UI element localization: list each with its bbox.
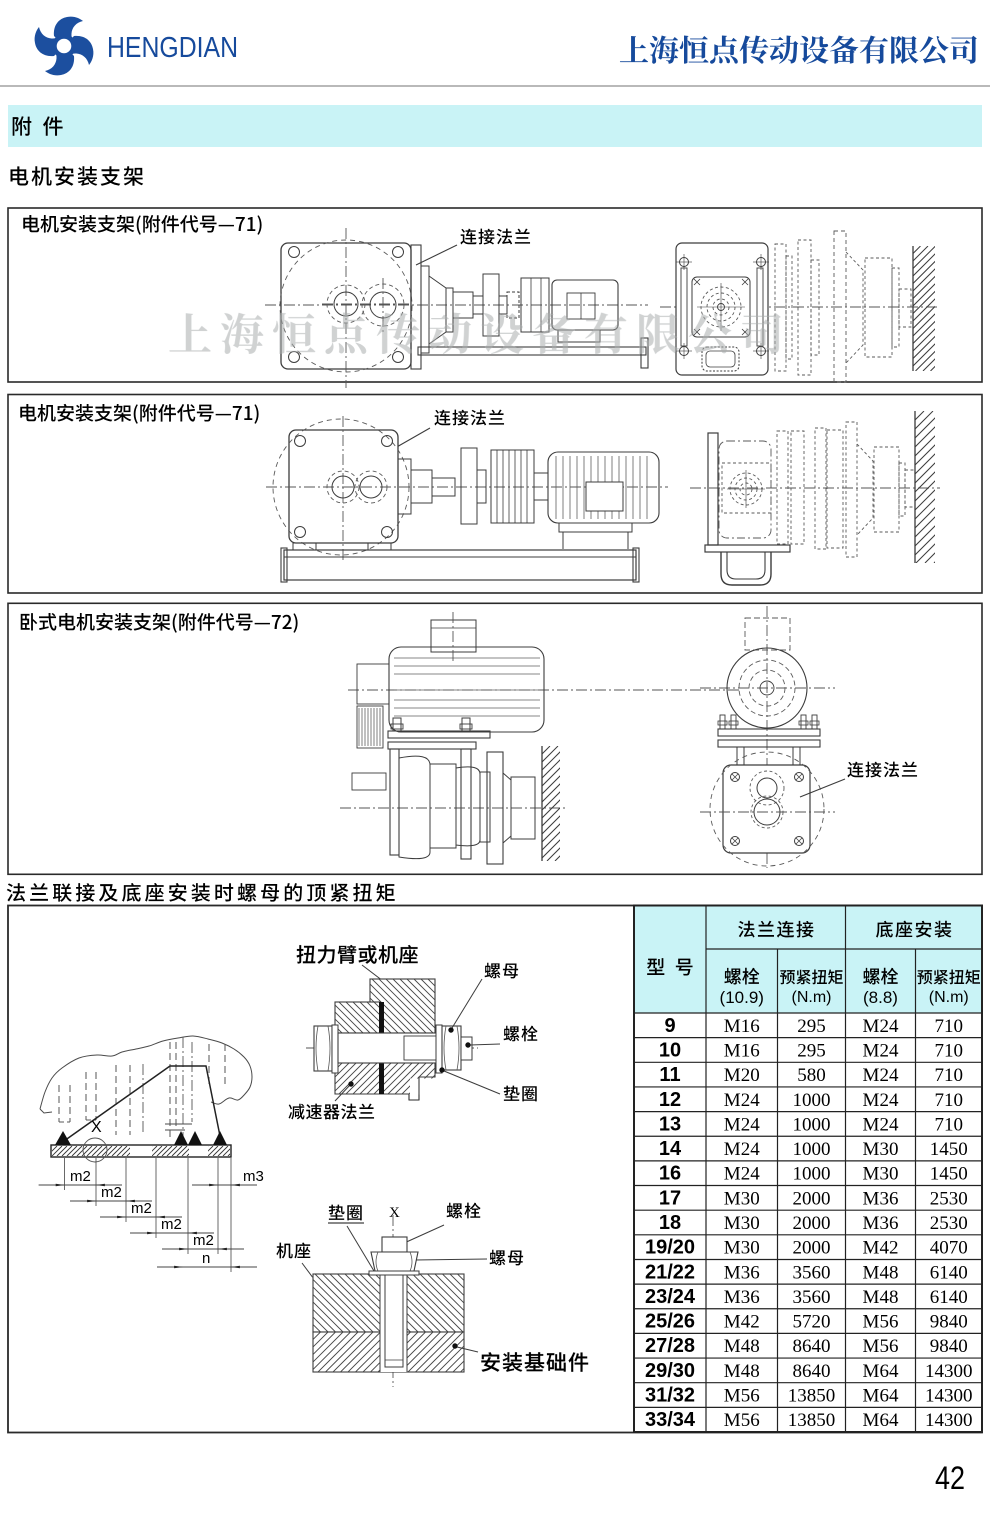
svg-text:m2: m2	[70, 1168, 91, 1185]
svg-text:X: X	[91, 1119, 102, 1136]
svg-text:710: 710	[935, 1016, 964, 1037]
svg-text:M30: M30	[724, 1213, 760, 1234]
svg-text:M24: M24	[863, 1065, 899, 1086]
svg-text:M24: M24	[863, 1090, 899, 1111]
svg-text:M30: M30	[724, 1188, 760, 1209]
svg-text:27/28: 27/28	[645, 1335, 695, 1357]
svg-text:M30: M30	[863, 1139, 899, 1160]
svg-text:13: 13	[659, 1113, 681, 1135]
svg-text:M64: M64	[863, 1386, 899, 1407]
svg-text:14300: 14300	[925, 1386, 973, 1407]
svg-text:M20: M20	[724, 1065, 760, 1086]
svg-text:3560: 3560	[793, 1287, 831, 1308]
svg-text:M36: M36	[724, 1262, 760, 1283]
svg-text:M24: M24	[724, 1139, 760, 1160]
svg-text:M24: M24	[863, 1114, 899, 1135]
svg-text:29/30: 29/30	[645, 1360, 695, 1382]
svg-text:3560: 3560	[793, 1262, 831, 1283]
svg-text:14: 14	[659, 1138, 682, 1160]
svg-text:M24: M24	[724, 1114, 760, 1135]
svg-text:(N.m): (N.m)	[929, 989, 969, 1006]
svg-text:M56: M56	[724, 1386, 760, 1407]
svg-text:M24: M24	[724, 1090, 760, 1111]
svg-text:710: 710	[935, 1114, 964, 1135]
svg-text:M16: M16	[724, 1016, 760, 1037]
svg-text:9: 9	[664, 1015, 675, 1037]
svg-text:14300: 14300	[925, 1410, 973, 1431]
svg-text:M48: M48	[863, 1287, 899, 1308]
svg-text:25/26: 25/26	[645, 1311, 695, 1333]
svg-text:23/24: 23/24	[645, 1286, 696, 1308]
svg-text:2000: 2000	[793, 1188, 831, 1209]
svg-text:1450: 1450	[930, 1164, 968, 1185]
svg-text:M36: M36	[863, 1213, 899, 1234]
svg-text:M24: M24	[863, 1040, 899, 1061]
svg-text:1000: 1000	[793, 1090, 831, 1111]
svg-text:2530: 2530	[930, 1213, 968, 1234]
svg-text:710: 710	[935, 1065, 964, 1086]
svg-text:M36: M36	[724, 1287, 760, 1308]
svg-text:M48: M48	[724, 1336, 760, 1357]
svg-text:m2: m2	[131, 1200, 152, 1217]
svg-text:1450: 1450	[930, 1139, 968, 1160]
svg-text:M56: M56	[724, 1410, 760, 1431]
svg-text:n: n	[202, 1250, 210, 1267]
svg-text:14300: 14300	[925, 1361, 973, 1382]
svg-text:11: 11	[659, 1064, 680, 1086]
svg-text:(N.m): (N.m)	[792, 989, 832, 1006]
svg-text:M36: M36	[863, 1188, 899, 1209]
svg-text:6140: 6140	[930, 1287, 968, 1308]
svg-text:m2: m2	[161, 1216, 182, 1233]
svg-text:31/32: 31/32	[645, 1385, 695, 1407]
svg-text:17: 17	[659, 1187, 681, 1209]
svg-text:12: 12	[659, 1089, 681, 1111]
svg-text:8640: 8640	[793, 1361, 831, 1382]
svg-text:710: 710	[935, 1040, 964, 1061]
svg-text:16: 16	[659, 1163, 681, 1185]
svg-text:M42: M42	[863, 1238, 899, 1259]
svg-text:710: 710	[935, 1090, 964, 1111]
svg-text:2000: 2000	[793, 1213, 831, 1234]
svg-text:m3: m3	[243, 1168, 264, 1185]
svg-text:m2: m2	[101, 1184, 122, 1201]
svg-text:M48: M48	[724, 1361, 760, 1382]
svg-text:M30: M30	[863, 1164, 899, 1185]
svg-text:2000: 2000	[793, 1238, 831, 1259]
svg-text:18: 18	[659, 1212, 681, 1234]
svg-text:6140: 6140	[930, 1262, 968, 1283]
svg-text:M56: M56	[863, 1336, 899, 1357]
svg-text:M64: M64	[863, 1410, 899, 1431]
svg-text:21/22: 21/22	[645, 1261, 695, 1283]
svg-text:8640: 8640	[793, 1336, 831, 1357]
svg-text:13850: 13850	[788, 1410, 836, 1431]
svg-text:M24: M24	[724, 1164, 760, 1185]
svg-text:1000: 1000	[793, 1114, 831, 1135]
svg-text:X: X	[389, 1205, 400, 1221]
svg-text:19/20: 19/20	[645, 1237, 695, 1259]
svg-text:295: 295	[797, 1016, 826, 1037]
svg-text:HENGDIAN: HENGDIAN	[107, 32, 238, 64]
svg-text:42: 42	[935, 1460, 965, 1496]
svg-text:M56: M56	[863, 1312, 899, 1333]
svg-text:(8.8): (8.8)	[863, 988, 898, 1007]
svg-text:2530: 2530	[930, 1188, 968, 1209]
svg-text:10: 10	[659, 1039, 681, 1061]
svg-text:1000: 1000	[793, 1139, 831, 1160]
svg-text:(10.9): (10.9)	[720, 988, 764, 1007]
svg-text:M42: M42	[724, 1312, 760, 1333]
svg-text:295: 295	[797, 1040, 826, 1061]
svg-text:M16: M16	[724, 1040, 760, 1061]
svg-text:13850: 13850	[788, 1386, 836, 1407]
svg-text:580: 580	[797, 1065, 826, 1086]
svg-text:1000: 1000	[793, 1164, 831, 1185]
svg-text:M30: M30	[724, 1238, 760, 1259]
svg-text:9840: 9840	[930, 1336, 968, 1357]
svg-text:M48: M48	[863, 1262, 899, 1283]
svg-text:4070: 4070	[930, 1238, 968, 1259]
svg-text:M24: M24	[863, 1016, 899, 1037]
svg-text:9840: 9840	[930, 1312, 968, 1333]
svg-text:33/34: 33/34	[645, 1409, 696, 1431]
svg-text:M64: M64	[863, 1361, 899, 1382]
svg-text:m2: m2	[193, 1232, 214, 1249]
svg-text:5720: 5720	[793, 1312, 831, 1333]
